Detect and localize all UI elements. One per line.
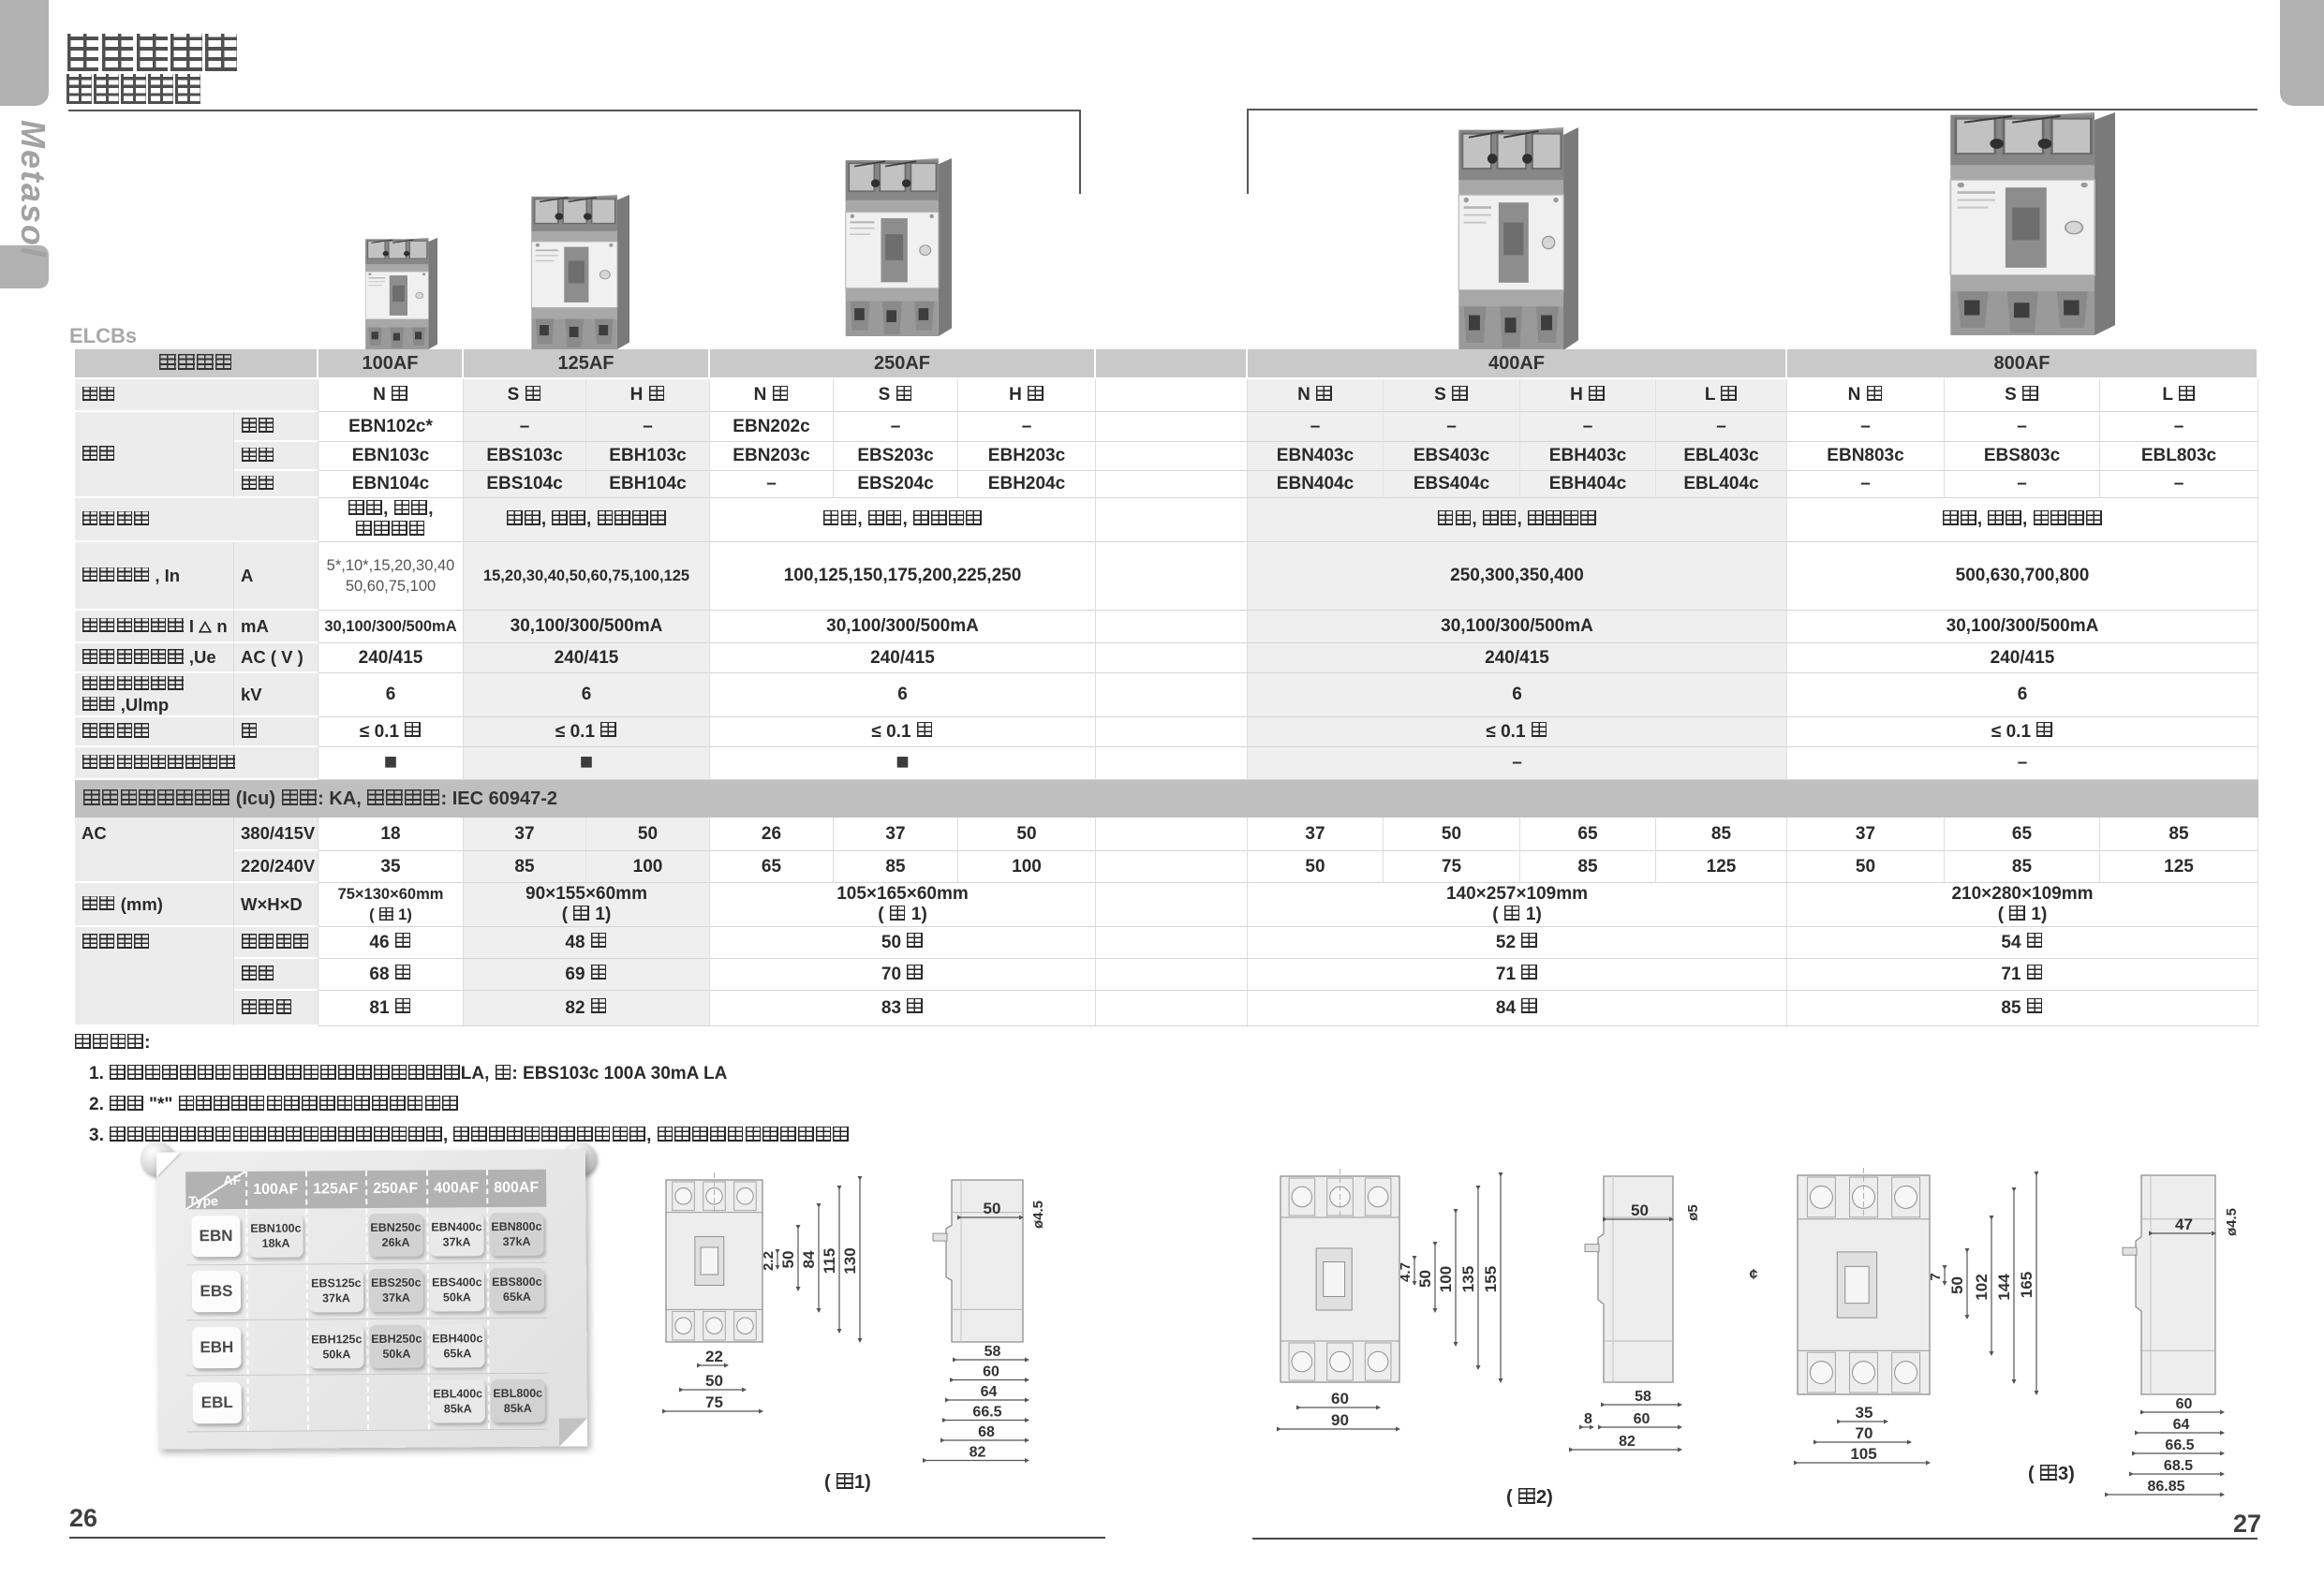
- svg-text:58: 58: [1635, 1389, 1651, 1405]
- svg-text:102: 102: [1973, 1274, 1991, 1300]
- svg-text:144: 144: [1995, 1274, 2013, 1301]
- svg-text:8: 8: [1584, 1411, 1592, 1427]
- svg-text:60: 60: [1634, 1411, 1650, 1427]
- svg-text:22: 22: [705, 1348, 723, 1365]
- svg-text:135: 135: [1459, 1266, 1477, 1292]
- svg-text:50: 50: [1948, 1276, 1966, 1294]
- svg-text:75: 75: [705, 1393, 723, 1411]
- svg-text:165: 165: [2018, 1272, 2035, 1298]
- svg-text:47: 47: [2175, 1216, 2193, 1233]
- svg-text:82: 82: [970, 1445, 986, 1461]
- svg-text:4.7: 4.7: [1398, 1262, 1414, 1282]
- svg-text:105: 105: [1850, 1445, 1876, 1463]
- svg-text:50: 50: [779, 1251, 797, 1269]
- svg-text:¢: ¢: [1750, 1267, 1758, 1283]
- svg-text:86.85: 86.85: [2147, 1479, 2184, 1495]
- svg-text:64: 64: [981, 1384, 998, 1400]
- svg-text:50: 50: [1416, 1270, 1434, 1288]
- svg-text:82: 82: [1619, 1434, 1636, 1450]
- svg-text:68.5: 68.5: [2164, 1458, 2193, 1474]
- svg-text:68: 68: [978, 1424, 995, 1440]
- svg-text:2.2: 2.2: [761, 1251, 777, 1271]
- svg-text:66.5: 66.5: [972, 1405, 1001, 1421]
- svg-text:60: 60: [983, 1364, 999, 1380]
- svg-text:155: 155: [1482, 1266, 1500, 1292]
- svg-text:35: 35: [1856, 1404, 1873, 1422]
- svg-text:60: 60: [1331, 1390, 1349, 1408]
- svg-text:64: 64: [2173, 1417, 2190, 1433]
- svg-text:7: 7: [1928, 1273, 1944, 1280]
- svg-text:ø5: ø5: [1685, 1204, 1701, 1221]
- svg-text:100: 100: [1437, 1266, 1455, 1292]
- svg-text:50: 50: [984, 1200, 1001, 1217]
- svg-text:50: 50: [705, 1372, 723, 1390]
- svg-text:ø4.5: ø4.5: [1030, 1201, 1046, 1229]
- svg-text:60: 60: [2176, 1396, 2193, 1412]
- svg-text:115: 115: [821, 1248, 838, 1274]
- svg-text:130: 130: [841, 1247, 859, 1274]
- svg-text:66.5: 66.5: [2165, 1437, 2194, 1453]
- svg-text:50: 50: [1631, 1201, 1649, 1219]
- svg-text:58: 58: [984, 1344, 1001, 1360]
- svg-text:84: 84: [800, 1250, 818, 1268]
- svg-text:90: 90: [1331, 1411, 1349, 1429]
- svg-text:ø4.5: ø4.5: [2224, 1208, 2240, 1236]
- svg-text:70: 70: [1856, 1424, 1873, 1442]
